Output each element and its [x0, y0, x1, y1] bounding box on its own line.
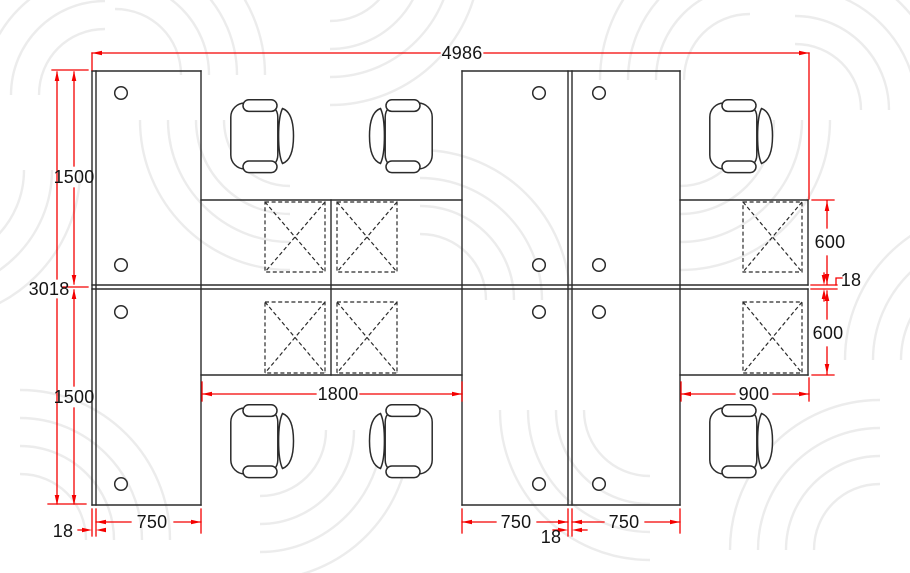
dim-label-left-depth-bottom: 1500 [54, 388, 95, 406]
floor-plan-drawing [0, 0, 910, 573]
office-chair [231, 405, 294, 478]
dim-label-left-panel-thickness: 18 [53, 522, 73, 540]
office-chair [231, 100, 294, 173]
dim-label-total-depth: 3018 [29, 280, 70, 298]
dim-label-center-desk-left: 750 [501, 513, 532, 531]
dim-label-right-run: 900 [739, 385, 770, 403]
pedestal-unit [743, 302, 802, 373]
dim-label-left-depth-top: 1500 [54, 168, 95, 186]
pedestal-unit [265, 302, 325, 373]
dim-label-center-run: 1800 [318, 385, 359, 403]
dim-label-left-desk-width: 750 [137, 513, 168, 531]
pedestal-unit [337, 302, 397, 373]
desk-outlines [92, 71, 808, 505]
dim-label-center-panel-thickness: 18 [541, 528, 561, 546]
dim-label-right-depth-top: 600 [815, 233, 846, 251]
office-chair [370, 405, 433, 478]
office-chair [710, 100, 773, 173]
dim-label-total-width: 4986 [442, 44, 483, 62]
pedestal-units [265, 202, 802, 373]
dim-label-right-depth-bottom: 600 [813, 324, 844, 342]
watermark-pattern [0, 0, 910, 573]
dim-label-right-gap: 18 [841, 271, 861, 289]
office-chair [710, 405, 773, 478]
pedestal-unit [265, 202, 325, 272]
floor-plan-canvas: 4986 3018 1500 1500 18 750 1800 750 18 7… [0, 0, 910, 573]
dim-label-center-desk-right: 750 [609, 513, 640, 531]
office-chair [370, 100, 433, 173]
pedestal-unit [337, 202, 397, 272]
